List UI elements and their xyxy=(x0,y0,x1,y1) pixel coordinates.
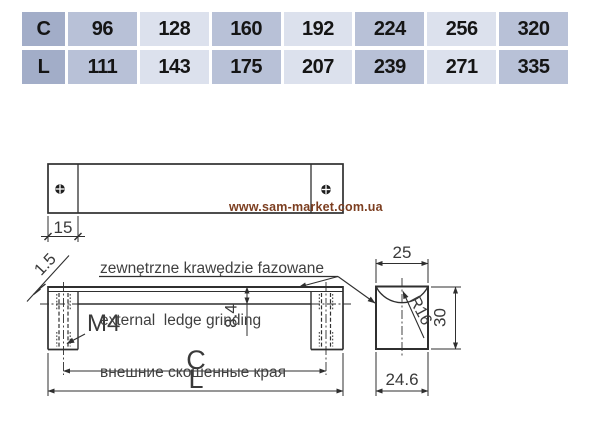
annotation-line-pl: zewnętrzne krawędzie fazowane xyxy=(100,260,324,277)
screw-head-right-icon xyxy=(321,185,331,195)
annotation-line-ru: внешние скошенные края xyxy=(100,364,324,381)
dim-chamfer-label: 1.5 xyxy=(31,250,60,279)
threaded-hole-left xyxy=(57,282,70,375)
watermark-text: www.sam-market.com.ua xyxy=(229,200,383,214)
dim-pad-width-label: 15 xyxy=(54,218,73,237)
dim-top-depth-label: 25 xyxy=(393,243,412,262)
product-drawing-page: C 96 128 160 192 224 256 320 L 111 143 1… xyxy=(0,0,600,421)
annotation-block: zewnętrzne krawędzie fazowane external l… xyxy=(100,226,324,415)
annotation-line-en: external ledge grinding xyxy=(100,312,324,329)
dim-height-label: 30 xyxy=(431,308,450,327)
dim-base-depth-label: 24.6 xyxy=(385,370,418,389)
screw-head-left-icon xyxy=(55,184,65,194)
